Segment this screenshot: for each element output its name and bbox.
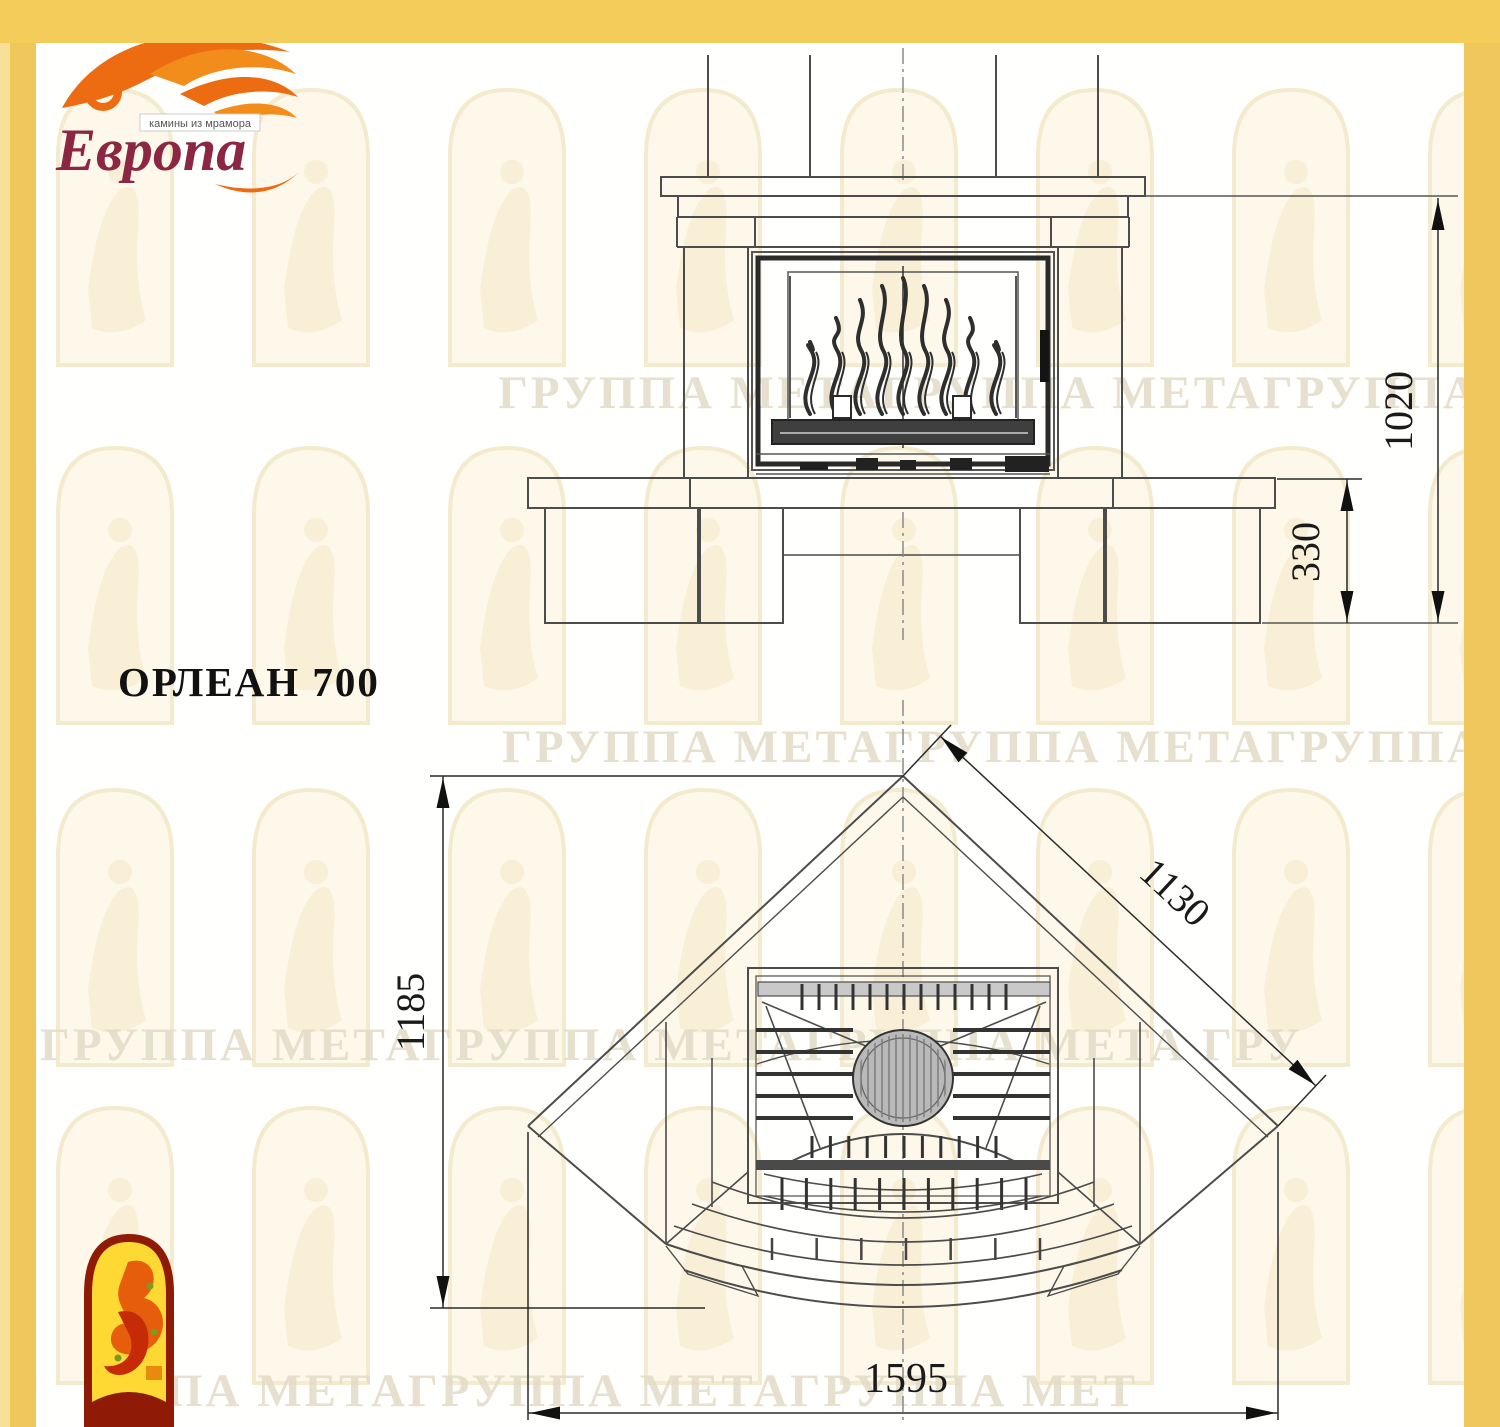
firebird-arch-logo (88, 1238, 170, 1427)
arch-watermark (1038, 90, 1152, 365)
dim-label-1595: 1595 (864, 1356, 948, 1402)
watermark-row-3: ГРУППА МЕТАГРУППА МЕТАГРУППА МЕТА ГРУ (40, 1019, 1303, 1071)
door-handle (1040, 330, 1049, 382)
arch-watermark (646, 90, 760, 365)
page-title: ОРЛЕАН 700 (118, 659, 380, 705)
brand-tagline: камины из мрамора (149, 118, 252, 130)
arch-watermark (1038, 448, 1152, 723)
plan-step-ticks (772, 1238, 1040, 1260)
arch-watermark (646, 448, 760, 723)
arch-watermark (1234, 448, 1348, 723)
dim-label-1020: 1020 (1376, 371, 1421, 451)
arch-watermark (450, 1108, 564, 1383)
arch-watermark (842, 1108, 956, 1383)
arch-watermark (254, 1108, 368, 1383)
arch-watermark (1234, 90, 1348, 365)
firebox-front (752, 252, 1054, 474)
watermark-row-2: ГРУППА МЕТАГРУППА МЕТАГРУППА МЕТА (502, 721, 1500, 773)
arch-watermark (450, 448, 564, 723)
border-right (1464, 43, 1500, 1427)
dim-label-330: 330 (1283, 522, 1328, 582)
dim-label-1185: 1185 (388, 973, 433, 1052)
arch-watermark (254, 90, 368, 365)
arch-watermark (842, 448, 956, 723)
border-top (0, 0, 1500, 43)
border-left-highlight (0, 43, 10, 1427)
technical-drawing-canvas: ГРУППА МЕТАГРУППА МЕТАГРУППА МЕТ ГРУППА … (0, 0, 1500, 1427)
arch-watermark (450, 90, 564, 365)
plan-dome-ticks (812, 1136, 996, 1158)
watermark-row-4: ПА МЕТАГРУППА МЕТАГРУППА МЕТ (166, 1365, 1138, 1417)
drawing-sheet: ГРУППА МЕТАГРУППА МЕТАГРУППА МЕТ ГРУППА … (0, 0, 1500, 1427)
ash-bar (772, 420, 1034, 444)
